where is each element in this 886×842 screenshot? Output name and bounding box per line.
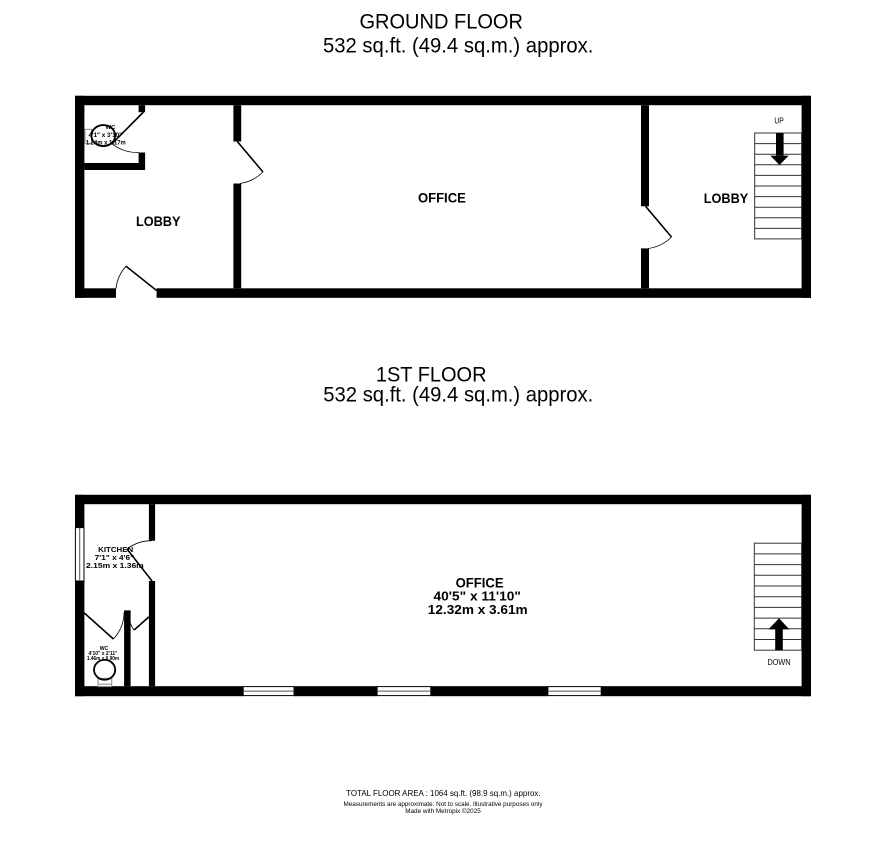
svg-text:TOTAL FLOOR AREA : 1064 sq.ft.: TOTAL FLOOR AREA : 1064 sq.ft. (98.9 sq.… — [346, 788, 540, 798]
svg-text:4'1" x 3'10": 4'1" x 3'10" — [89, 133, 123, 139]
svg-text:LOBBY: LOBBY — [136, 214, 181, 229]
svg-text:LOBBY: LOBBY — [704, 191, 748, 206]
svg-text:GROUND FLOOR: GROUND FLOOR — [359, 11, 523, 34]
svg-text:7'1" x 4'6": 7'1" x 4'6" — [95, 555, 134, 562]
svg-text:DOWN: DOWN — [768, 657, 791, 667]
svg-text:OFFICE: OFFICE — [418, 190, 466, 205]
svg-text:Made with Metropix ©2025: Made with Metropix ©2025 — [405, 807, 481, 815]
svg-text:UP: UP — [774, 115, 784, 125]
svg-text:1.24m x 1.17m: 1.24m x 1.17m — [86, 140, 126, 146]
svg-text:2.15m x 1.36m: 2.15m x 1.36m — [86, 563, 144, 570]
svg-text:KITCHEN: KITCHEN — [98, 545, 133, 554]
svg-text:1.46m x 0.90m: 1.46m x 0.90m — [87, 656, 120, 662]
svg-text:532 sq.ft. (49.4 sq.m.) approx: 532 sq.ft. (49.4 sq.m.) approx. — [323, 383, 593, 406]
svg-text:532 sq.ft. (49.4 sq.m.) approx: 532 sq.ft. (49.4 sq.m.) approx. — [323, 34, 594, 57]
svg-text:12.32m x 3.61m: 12.32m x 3.61m — [428, 602, 528, 617]
svg-text:WC: WC — [106, 125, 116, 131]
